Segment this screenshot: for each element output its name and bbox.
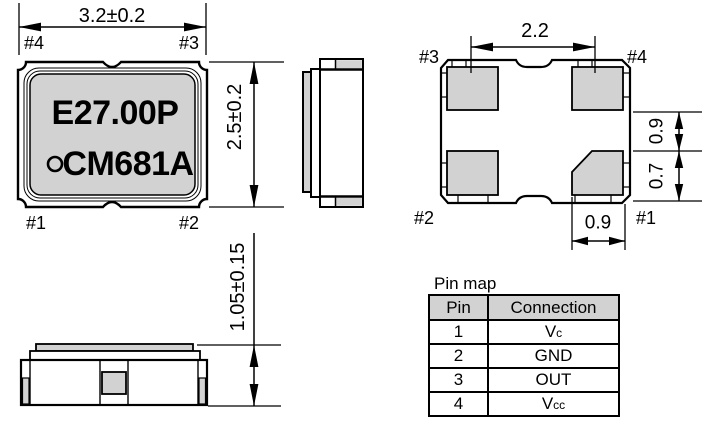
top-view: [18, 62, 207, 207]
pin-number: 2: [429, 344, 488, 368]
connection-text: V: [542, 394, 553, 413]
pin-number: 4: [429, 392, 488, 416]
marking-line2: CM681A: [62, 147, 193, 181]
side-view: [303, 59, 363, 207]
dim-top-view-height-label: 2.5±0.2: [225, 84, 245, 151]
arrowhead-icon: [609, 237, 625, 245]
dim-pad-height-clearance-lines: [633, 112, 702, 201]
pin-connection: OUT: [488, 368, 619, 392]
arrowhead-icon: [675, 151, 683, 168]
arrowhead-icon: [250, 62, 259, 84]
dim-pad-height-label: 0.9: [648, 118, 667, 144]
pin-connection: Vc: [488, 320, 619, 344]
arrowhead-icon: [572, 237, 588, 245]
arrowhead-icon: [675, 184, 683, 201]
front-view-lid: [36, 344, 193, 351]
front-view-step: [30, 351, 200, 360]
pin-number: 1: [429, 320, 488, 344]
connection-subscript: cc: [553, 398, 565, 412]
pin-map-row-4: 4 Vcc: [429, 392, 619, 416]
connection-subscript: c: [556, 326, 562, 340]
front-view-center-terminal: [102, 372, 126, 394]
arrowhead-icon: [250, 345, 259, 367]
marking-line1: E27.00P: [52, 96, 179, 130]
top-view-pin3-label: #3: [179, 34, 199, 52]
dim-pad-width-label: 0.9: [585, 214, 611, 233]
pad-3: [447, 67, 498, 110]
package-drawing-canvas: 3.2±0.2 #4 #3 #1 #2 E27.00P CM681A 2.5±0…: [0, 0, 705, 427]
connection-text: OUT: [536, 370, 572, 389]
pin-map-header-row: Pin Connection: [429, 295, 619, 320]
arrowhead-icon: [250, 185, 259, 207]
front-view-right-terminal: [199, 378, 206, 404]
pin-connection: GND: [488, 344, 619, 368]
front-view-left-terminal: [23, 378, 30, 404]
bottom-view-pin1-label: #1: [636, 209, 656, 227]
dim-top-view-width-label: 3.2±0.2: [79, 6, 146, 26]
dim-pad-pitch-label: 2.2: [521, 21, 549, 41]
side-view-bottom-terminal: [336, 198, 362, 206]
top-view-pin4-label: #4: [24, 34, 44, 52]
pin-number: 3: [429, 368, 488, 392]
top-view-pin1-label: #1: [26, 214, 46, 232]
pad-4: [572, 67, 623, 110]
front-view: [21, 344, 207, 405]
pin-map-header-connection: Connection: [488, 295, 619, 320]
bottom-view-pin3-label: #3: [419, 48, 439, 66]
arrowhead-icon: [675, 112, 683, 129]
pin-map-header-pin: Pin: [429, 295, 488, 320]
dim-top-view-height-lines: [209, 62, 284, 207]
arrowhead-icon: [250, 384, 259, 406]
arrowhead-icon: [19, 23, 41, 32]
connection-text: GND: [535, 346, 573, 365]
pin-map-row-2: 2 GND: [429, 344, 619, 368]
side-view-body: [320, 59, 363, 207]
pin-map-title: Pin map: [434, 274, 496, 294]
side-view-lid-inner: [311, 69, 320, 197]
dim-front-view-height-label: 1.05±0.15: [228, 243, 248, 332]
arrowhead-icon: [471, 43, 493, 52]
arrowhead-icon: [573, 43, 595, 52]
pin-connection: Vcc: [488, 392, 619, 416]
top-view-pin2-label: #2: [179, 214, 199, 232]
pin-map-row-1: 1 Vc: [429, 320, 619, 344]
arrowhead-icon: [675, 134, 683, 151]
bottom-view: [441, 60, 630, 203]
bottom-view-pin2-label: #2: [414, 209, 434, 227]
pad-2: [447, 151, 498, 195]
pin-map-table: Pin Connection 1 Vc 2 GND 3 OUT 4 Vcc: [428, 294, 620, 417]
side-view-lid-outer: [303, 72, 311, 192]
dim-pad-clearance-label: 0.7: [648, 163, 667, 189]
connection-text: V: [545, 322, 556, 341]
side-view-top-terminal: [336, 60, 362, 68]
pin-map-row-3: 3 OUT: [429, 368, 619, 392]
arrowhead-icon: [184, 23, 206, 32]
bottom-view-pin4-label: #4: [627, 48, 647, 66]
